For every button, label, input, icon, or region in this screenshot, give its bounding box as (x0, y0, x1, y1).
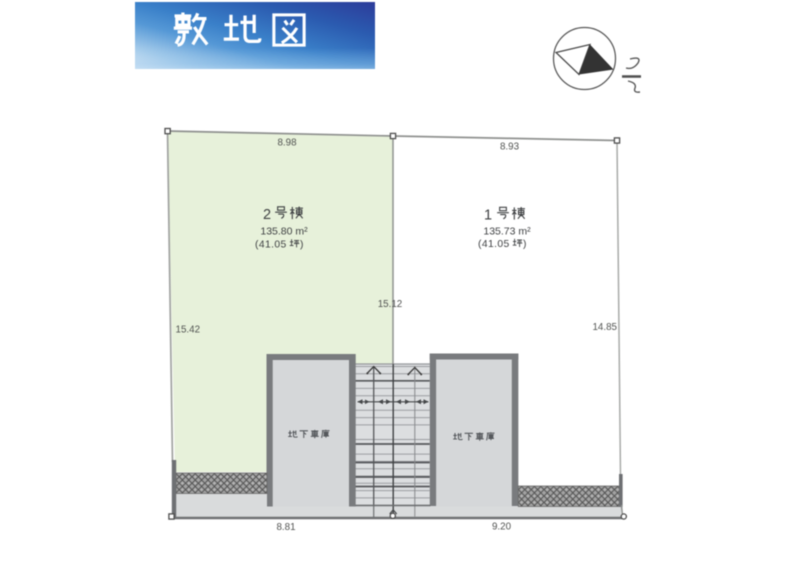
svg-text:135.80 m²: 135.80 m² (260, 226, 308, 238)
svg-text:8.98: 8.98 (277, 138, 297, 149)
svg-text:135.73 m²: 135.73 m² (483, 225, 531, 237)
svg-text:8.93: 8.93 (500, 142, 520, 153)
svg-text:(41.05: (41.05 (478, 239, 510, 250)
svg-text:9.20: 9.20 (492, 522, 512, 533)
svg-text:15.42: 15.42 (176, 325, 201, 336)
svg-text:2: 2 (263, 207, 271, 223)
svg-text:15.12: 15.12 (378, 299, 403, 310)
svg-text:1: 1 (484, 208, 492, 224)
svg-text:8.81: 8.81 (276, 522, 295, 533)
svg-text:): ) (300, 240, 303, 251)
svg-text:): ) (523, 239, 526, 250)
svg-text:14.85: 14.85 (592, 322, 617, 333)
svg-text:(41.05: (41.05 (255, 240, 287, 251)
